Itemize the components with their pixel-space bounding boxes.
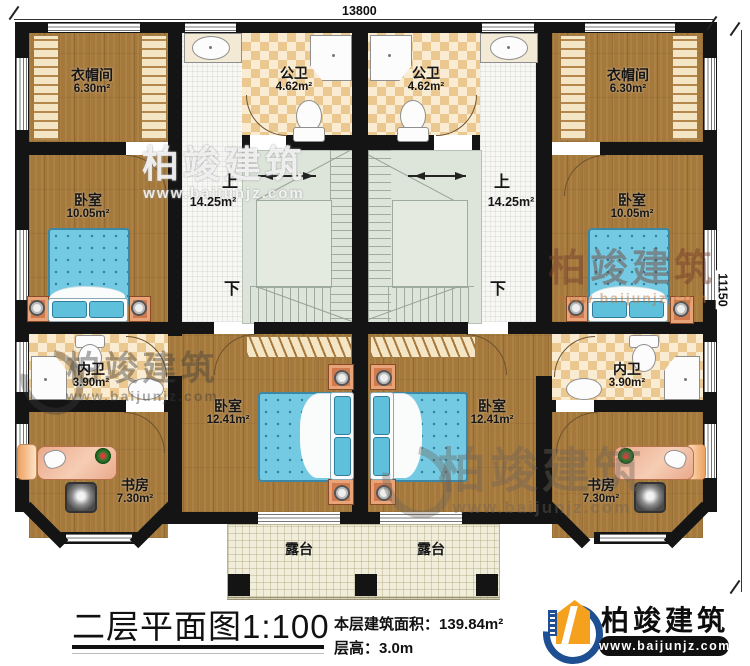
nightstand-lamp	[568, 300, 584, 316]
wardrobe-rack	[141, 35, 167, 141]
wall-study-right-left	[168, 334, 182, 336]
floor-plan-canvas: 13800 11150	[0, 0, 750, 666]
window-top-corridor-left	[185, 23, 236, 32]
room-label-bedroom-small-right: 卧室 10.05m²	[592, 193, 672, 220]
floor-area-info: 本层建筑面积：139.84m²	[334, 613, 503, 634]
stair-up-label-left: 上	[222, 168, 238, 192]
window-right-bedroom	[704, 230, 716, 300]
wall-innerbath-bottom-right2	[594, 400, 703, 412]
room-label-bedroom-small-left: 卧室 10.05m²	[48, 193, 128, 220]
stair-area-right: 14.25m²	[482, 196, 540, 209]
dimension-line-top	[14, 19, 714, 20]
nightstand-lamp	[334, 485, 350, 501]
stair-arrow-head	[303, 172, 314, 180]
logo-website-badge: www.baijunjz.com	[599, 636, 729, 656]
stair-down-label-right: 下	[490, 275, 506, 299]
room-label-cloak-left: 衣帽间 6.30m²	[52, 68, 132, 95]
pillow	[629, 301, 664, 318]
wall-bed-large-bottom-right	[368, 512, 380, 524]
wall-bed-large-bottom-left	[160, 512, 258, 524]
room-label-inner-bath-right: 内卫 3.90m²	[587, 362, 667, 389]
closet-bedroom-large-left	[246, 336, 352, 358]
wall-cloak-corridor-left	[168, 22, 182, 322]
nightstand-lamp	[334, 370, 350, 386]
nightstand-lamp	[376, 370, 392, 386]
wall-bed-large-bottom-left2	[340, 512, 352, 524]
stair-arrow-head	[414, 172, 425, 180]
stair-area-left: 14.25m²	[184, 196, 242, 209]
pillow	[89, 301, 124, 318]
bay-window-left	[66, 534, 132, 542]
shower-drain	[684, 378, 687, 381]
pillow	[373, 396, 390, 435]
bed-blanket	[390, 393, 422, 478]
armchair	[17, 444, 37, 480]
room-label-bedroom-large-left: 卧室 12.41m²	[188, 399, 268, 426]
pillow	[334, 437, 351, 476]
pillow	[373, 437, 390, 476]
room-label-terrace-left: 露台	[259, 542, 339, 557]
terrace-post-left	[228, 574, 250, 596]
pillow	[334, 396, 351, 435]
wall-vert-right-mid	[536, 376, 552, 512]
wall-cloak-bottom-right	[600, 142, 703, 155]
dimension-tick	[730, 22, 741, 36]
stair-arrow-head	[262, 172, 273, 180]
closet-bedroom-large-right	[370, 336, 476, 358]
title-underline	[72, 645, 324, 649]
shower-drain	[388, 54, 391, 57]
room-label-study-left: 书房 7.30m²	[95, 478, 175, 505]
wall-innerbath-top-left	[15, 322, 168, 334]
room-label-inner-bath-left: 内卫 3.90m²	[51, 362, 131, 389]
window-top-cloak-left	[48, 23, 140, 32]
window-top-corridor-right	[482, 23, 534, 32]
window-top-cloak-right	[585, 23, 675, 32]
logo-company-name: 柏竣建筑	[601, 599, 729, 639]
wardrobe-rack	[560, 35, 586, 141]
window-left-bedroom	[16, 230, 28, 300]
wall-cloak-corridor-right	[536, 22, 552, 322]
terrace-door-left	[258, 514, 340, 522]
floor-height-info: 层高：3.0m	[334, 637, 413, 658]
wall-bath-bottom-right2	[472, 135, 480, 150]
stair-down-label-left: 下	[224, 275, 240, 299]
sink-drain	[209, 46, 212, 49]
wall-stairs-bottom-left	[168, 322, 214, 334]
room-label-bedroom-large-right: 卧室 12.41m²	[452, 399, 532, 426]
stair-landing	[256, 200, 332, 288]
stair-arrow-head	[455, 172, 466, 180]
toilet-tank	[397, 127, 429, 142]
room-label-study-right: 书房 7.30m²	[561, 478, 641, 505]
dimension-width-label: 13800	[339, 4, 380, 18]
plant	[95, 448, 111, 464]
dimension-line-right	[741, 30, 742, 592]
window-left-innerbath	[16, 342, 28, 392]
dimension-height-label: 11150	[716, 270, 730, 309]
wall-cloak-bottom-left	[29, 142, 126, 155]
window-right-innerbath	[704, 342, 716, 392]
wall-bath-bottom-left2	[242, 135, 250, 150]
title-underline-light	[72, 653, 324, 654]
wall-innerbath-bottom-left	[15, 400, 126, 412]
dimension-tick	[9, 6, 20, 20]
shower-drain	[332, 54, 335, 57]
plan-scale: 1:100	[242, 608, 330, 645]
logo-column-icon	[548, 610, 557, 636]
nightstand-lamp	[376, 485, 392, 501]
plan-title: 二层平面图1:100	[72, 600, 330, 648]
dimension-tick	[730, 580, 741, 594]
stair-up-label-right: 上	[494, 168, 510, 192]
toilet-tank	[293, 127, 325, 142]
stair-steps	[250, 286, 336, 323]
wall-bed-large-bottom-right2	[462, 512, 560, 524]
room-label-cloak-right: 衣帽间 6.30m²	[588, 68, 668, 95]
terrace-post-right	[476, 574, 498, 596]
window-right-cloak	[704, 58, 716, 130]
nightstand-lamp	[29, 300, 45, 316]
bed-blanket	[300, 393, 332, 478]
wall-innerbath-bottom-right	[552, 400, 556, 412]
plant	[618, 448, 634, 464]
room-label-pub-bath-left: 公卫 4.62m²	[254, 66, 334, 93]
stair-landing	[392, 200, 468, 288]
stair-steps	[388, 286, 474, 323]
nightstand-lamp	[131, 300, 147, 316]
sink-basin	[128, 378, 164, 400]
wardrobe-rack	[672, 35, 698, 141]
wall-stairs-bottom-right2	[508, 322, 552, 334]
bay-window-right	[600, 534, 666, 542]
room-label-terrace-right: 露台	[391, 542, 471, 557]
wall-stairs-bottom-left2	[254, 322, 352, 334]
pillow	[52, 301, 87, 318]
room-label-pub-bath-right: 公卫 4.62m²	[386, 66, 466, 93]
plan-title-text: 二层平面图	[72, 608, 242, 645]
computer-monitor	[65, 482, 97, 513]
sink-drain	[507, 46, 510, 49]
wall-party	[352, 22, 368, 524]
shower-drain	[44, 378, 47, 381]
window-left-cloak	[16, 58, 28, 130]
terrace-door-right	[380, 514, 462, 522]
nightstand-lamp	[673, 301, 689, 317]
wall-stairs-bottom-right	[368, 322, 468, 334]
pillow	[592, 301, 627, 318]
terrace-post-center	[355, 574, 377, 596]
